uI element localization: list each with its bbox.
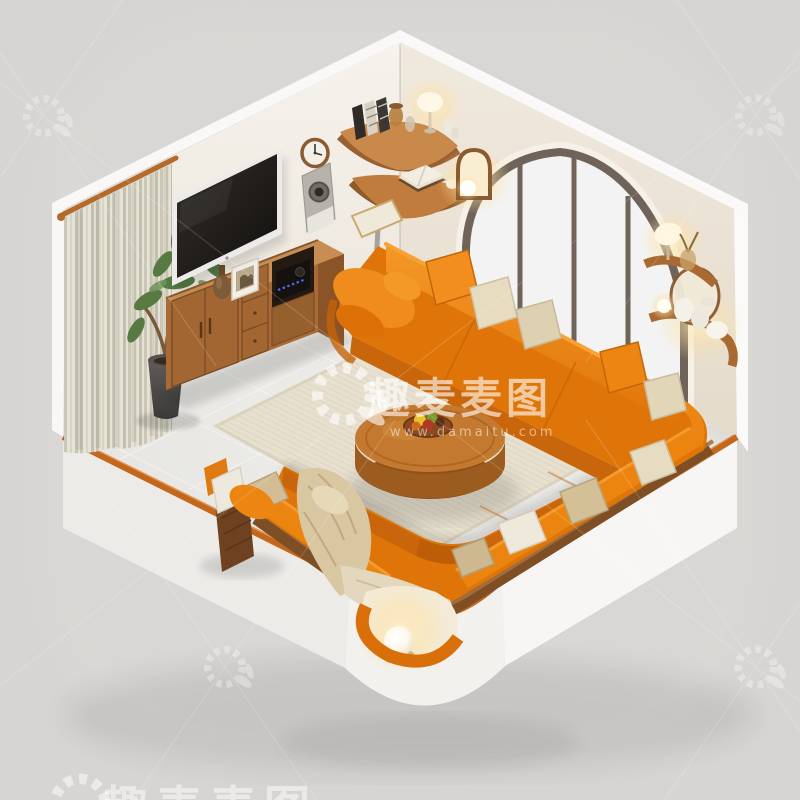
wall-speaker xyxy=(302,163,335,235)
sconce-bulb xyxy=(460,180,476,196)
watermark-brand-text: 趣麦麦图 xyxy=(368,374,552,423)
watermark-url-text: www.damaitu.com xyxy=(390,425,556,440)
wall-sconce xyxy=(436,146,512,214)
living-room-render: 趣麦麦图 www.damaitu.com 趣麦麦图 xyxy=(0,0,800,800)
render-canvas: 趣麦麦图 www.damaitu.com 趣麦麦图 xyxy=(0,0,800,800)
wall-clock xyxy=(302,140,328,167)
watermark-brand-text-bottom: 趣麦麦图 xyxy=(102,781,318,800)
